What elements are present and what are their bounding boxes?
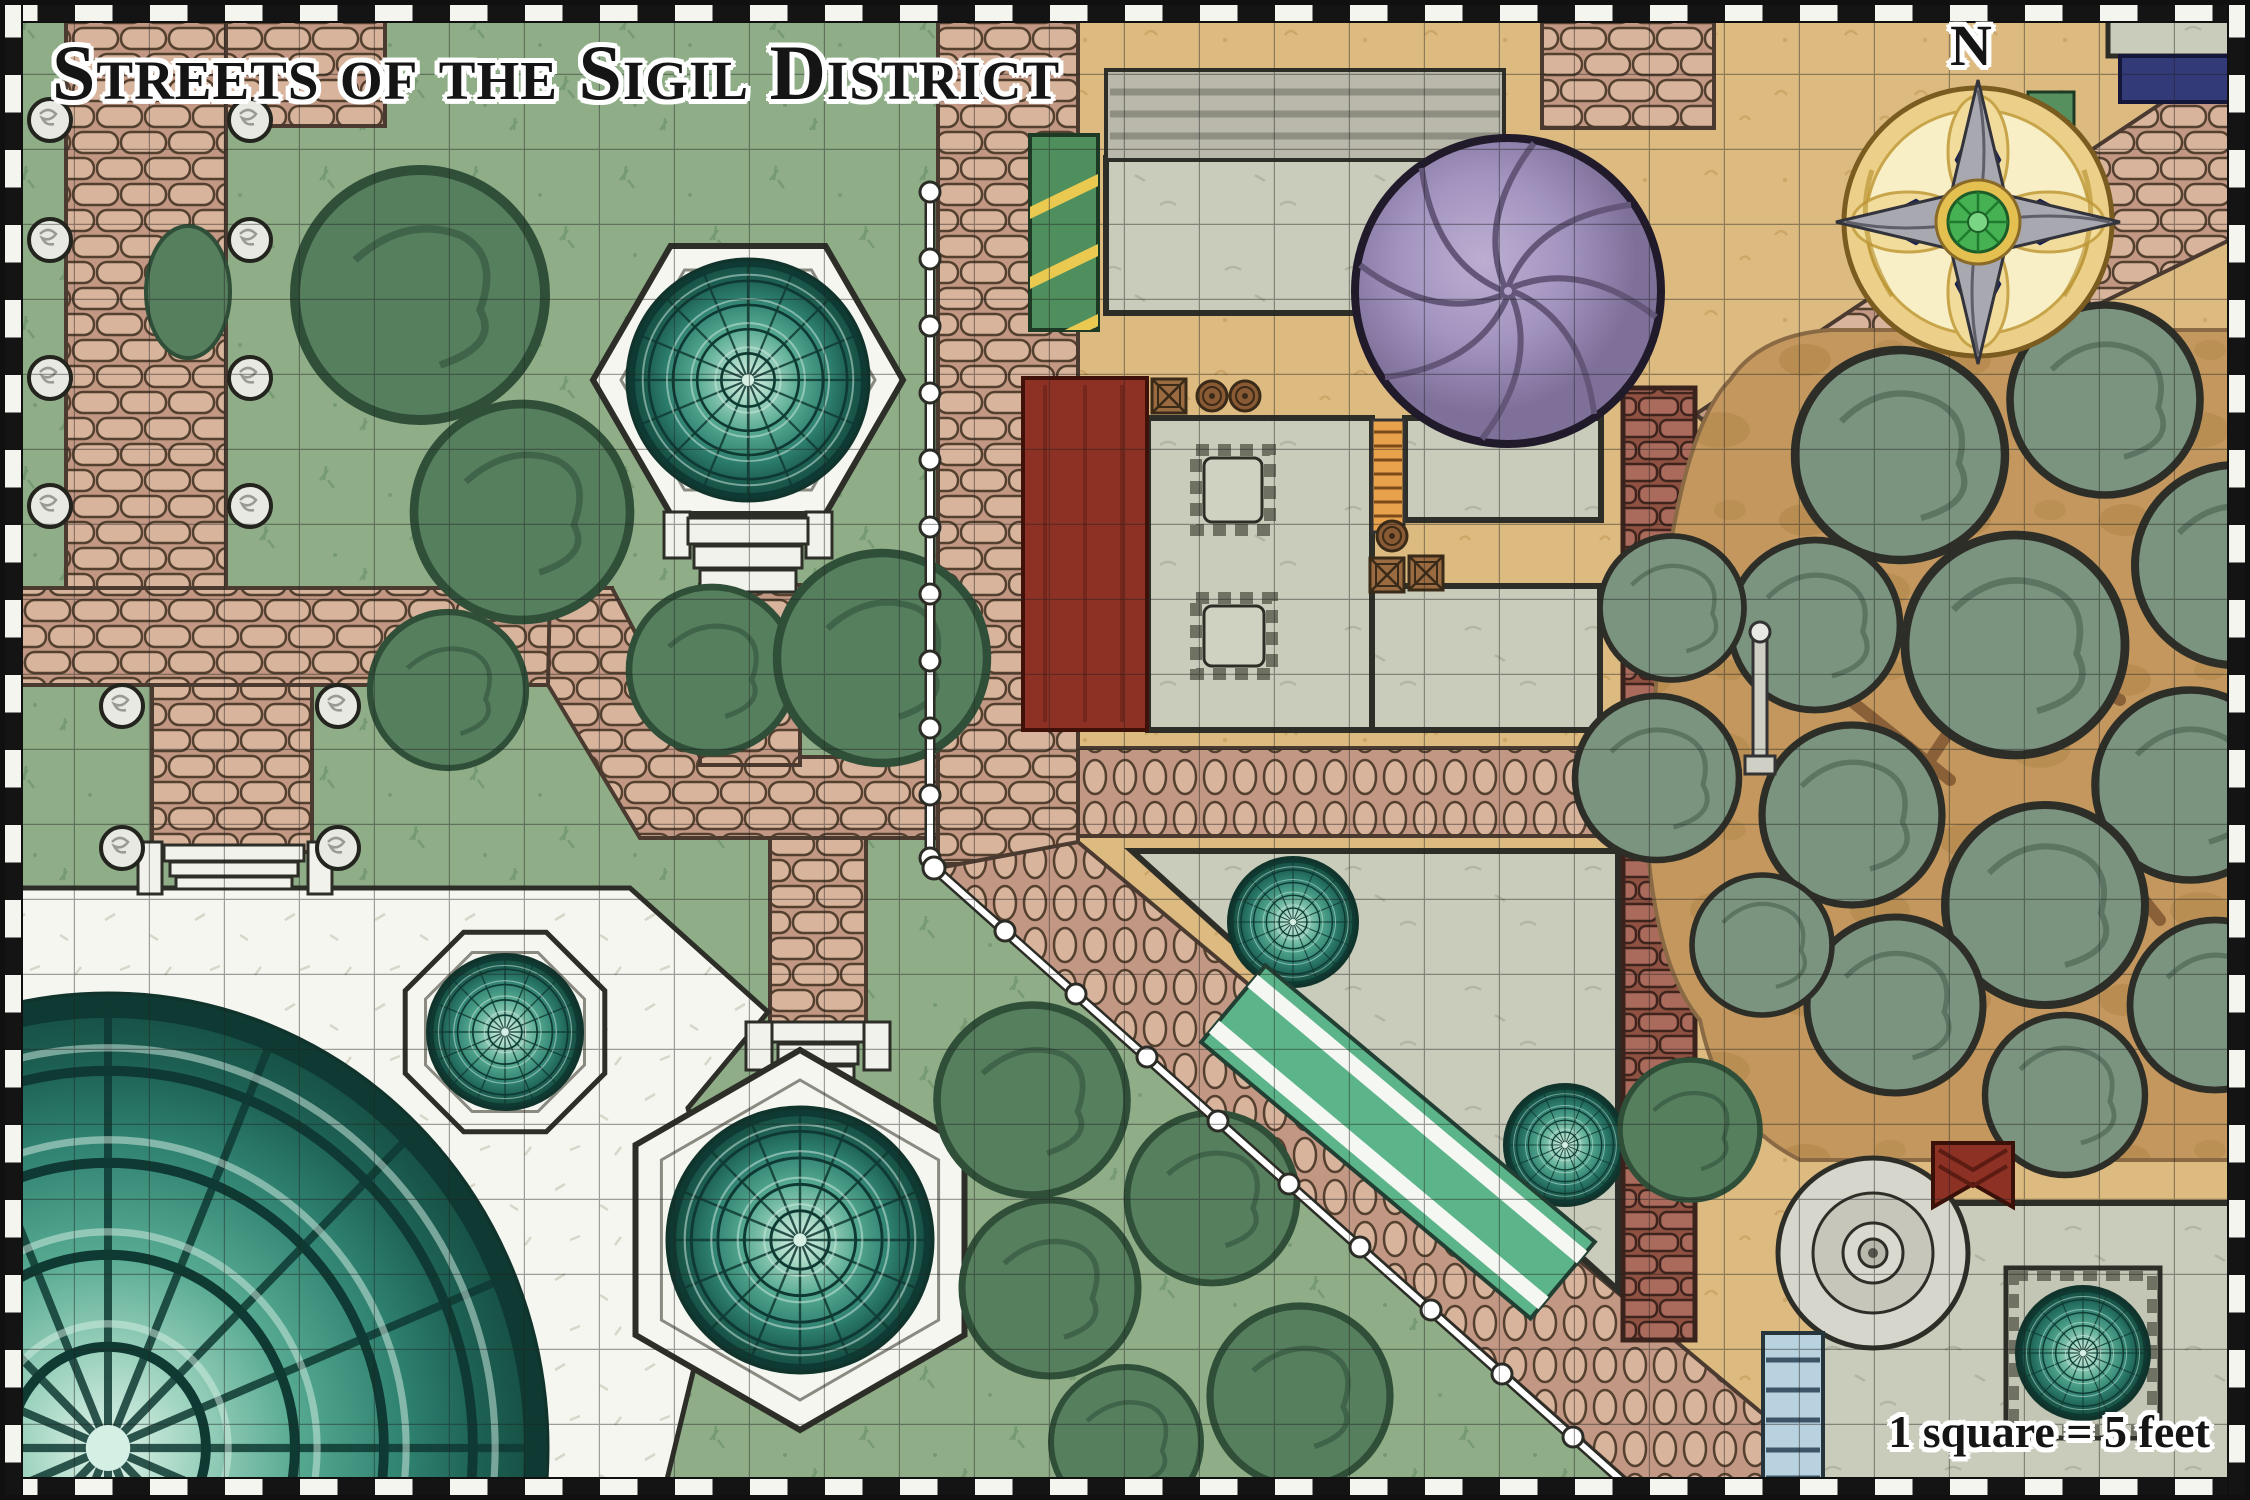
map-scale-label: 1 square = 5 feet (1888, 1405, 2210, 1458)
map-canvas (0, 0, 2250, 1500)
battle-map: Streets of the Sigil District N 1 square… (0, 0, 2250, 1500)
map-title: Streets of the Sigil District (52, 28, 1060, 118)
compass-north-label: N (1950, 12, 1992, 79)
